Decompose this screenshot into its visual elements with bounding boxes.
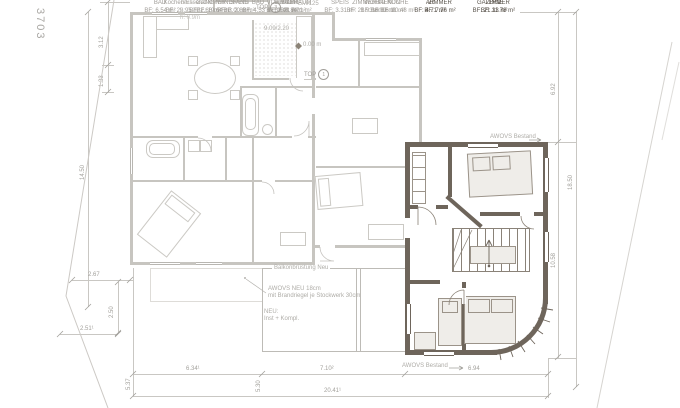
sink-icon: [262, 124, 273, 135]
dimension-line: [133, 374, 548, 375]
door-opening: [292, 136, 308, 138]
washer-icon: [200, 140, 212, 152]
room-name: ZIMMER: [197, 0, 232, 8]
wall-segment: [252, 180, 254, 264]
dim-5-30: 5.30: [256, 380, 262, 392]
wall-segment: [312, 12, 315, 265]
dimension-line: [576, 12, 577, 387]
dim-6-92: 6.92: [551, 83, 557, 95]
dimension-extension: [102, 92, 114, 93]
pillow-icon: [164, 194, 195, 222]
washer-icon: [188, 140, 200, 152]
wall-segment: [275, 86, 277, 138]
balcony-edge: [262, 351, 405, 352]
dim-6-34: 6.34¹: [186, 366, 200, 372]
dimension-extension: [102, 65, 114, 66]
wall-segment: [358, 38, 360, 88]
door-opening: [520, 212, 534, 216]
bed-icon: [137, 190, 201, 258]
stair-note: 9.09/2.20: [264, 26, 289, 33]
pillow-icon: [442, 301, 458, 313]
door-opening: [320, 245, 335, 248]
chair-icon: [230, 56, 240, 66]
dimension-line: [72, 280, 133, 281]
old-terrace-edge: [150, 301, 262, 302]
room-label-bad-eg: BAD BF: 6.54 m²: [144, 0, 175, 15]
floor-plan: 3703: [0, 0, 680, 408]
awovs-neu-line2: mit Brandriegel je Stockwerk 30cm: [268, 293, 360, 299]
awovs-bestand-note-bottom: AWOVS Bestand: [402, 363, 448, 370]
bathtub-icon: [149, 143, 175, 155]
room-label-zimmer-neu-sued: ZIMMER BF: 7.76 m²: [424, 0, 455, 15]
unit-badge-top3: TOP 3: [256, 2, 281, 13]
wall-segment: [252, 136, 254, 182]
room-label-zimmer-west: ZIMMER BF: 19.64 m²: [197, 0, 232, 15]
door-opening: [418, 205, 436, 209]
bed-icon: [464, 296, 516, 344]
room-name: ZIMMER: [424, 0, 455, 8]
dim-2-51: 2.51¹: [80, 326, 94, 332]
dimension-line: [88, 12, 89, 307]
wall-segment: [316, 86, 419, 88]
window-icon: [406, 304, 411, 334]
badge-number: 1: [318, 69, 329, 80]
room-name: Balkon: [180, 0, 201, 8]
wall-segment: [240, 86, 314, 88]
wardrobe-icon: [414, 332, 436, 350]
room-note: B: 0.2m: [180, 8, 201, 16]
pillow-icon: [468, 299, 490, 313]
chair-icon: [188, 56, 198, 66]
awovs-neu-note: AWOVS NEU 18cm mit Brandriegel je Stockw…: [268, 286, 360, 300]
dim-3-12: 3.12: [99, 36, 105, 48]
dimension-extension: [133, 268, 134, 396]
bruestung-note: Balkonbrüstung Neu: [272, 265, 330, 272]
room-area: BF: 6.54 m²: [144, 8, 175, 14]
bed-icon: [467, 150, 533, 197]
room-area: BF: 7.76 m²: [424, 8, 455, 14]
new-wall-segment: [448, 147, 452, 197]
balcony-edge: [262, 268, 263, 352]
room-label-balkon-alt: Balkon B: 0.2m h: 0.9m: [180, 0, 201, 23]
neu-line1: NEU:: [264, 309, 299, 316]
room-name: BALKON: [371, 0, 405, 8]
window-type-note: EM/125: [298, 1, 319, 8]
dim-18-50: 18.50: [568, 175, 574, 190]
old-terrace-edge: [150, 268, 262, 269]
bathtub-icon: [245, 98, 256, 130]
room-name: GALERIE: [473, 0, 508, 8]
neu-note: NEU: Inst + Kompl.: [264, 309, 299, 323]
dimension-line: [108, 2, 109, 92]
dim-2-50: 2.50: [109, 306, 115, 318]
dim-6-94: 6.94: [468, 366, 480, 372]
dim-5-37: 5.37: [126, 378, 132, 390]
dim-14-50: 14.50: [80, 165, 86, 180]
table-icon: [352, 118, 378, 134]
wall-segment: [130, 180, 316, 182]
chair-icon: [188, 90, 198, 100]
room-label-balkon: BALKON BF: 16.11 m²: [371, 0, 405, 15]
dimension-extension: [548, 358, 576, 359]
door-opening: [312, 98, 315, 114]
room-name: BAD: [144, 0, 175, 8]
badge-label: TOP: [256, 5, 268, 11]
room-area: BF: 21.33 m²: [473, 8, 508, 14]
dimension-line: [133, 396, 548, 397]
dim-20-41: 20.41¹: [324, 388, 341, 394]
room-area: BF: 19.64 m²: [197, 8, 232, 14]
badge-number: 3: [270, 2, 281, 13]
dimension-extension: [100, 2, 130, 3]
dimension-extension: [548, 142, 576, 143]
pillow-icon: [318, 178, 331, 207]
level-marker: 0.00 m: [303, 42, 321, 49]
old-terrace-edge: [150, 268, 151, 302]
door-opening: [462, 288, 466, 304]
bed-icon: [438, 298, 462, 346]
dimension-line: [118, 282, 119, 333]
dim-1-33: 1.33: [99, 75, 105, 87]
balcony-divider: [360, 268, 361, 352]
property-boundary-right2: [662, 62, 679, 140]
window-icon: [366, 38, 396, 41]
unit-badge-top1: TOP 1: [304, 69, 329, 80]
dimension-extension: [548, 358, 549, 398]
wall-segment: [332, 12, 335, 41]
leader-line-awovs-neu: [246, 279, 266, 293]
chair-icon: [230, 90, 240, 100]
leader-dot: [244, 277, 246, 279]
property-boundary-right: [597, 42, 672, 408]
wall-segment: [130, 136, 316, 138]
wall-segment: [183, 136, 185, 182]
dim-10-58: 10.58: [551, 253, 557, 268]
sofa-icon: [470, 246, 516, 264]
dimension-extension: [520, 12, 576, 13]
kitchen-counter-icon: [364, 42, 420, 56]
dim-7-10: 7.10²: [320, 366, 334, 372]
awovs-bestand-note-top: AWOVS Bestand: [490, 134, 536, 141]
new-wall-segment: [410, 280, 440, 284]
room-area: BF: 16.11 m²: [371, 8, 405, 14]
balcony-divider: [356, 268, 357, 352]
dimension-line: [60, 334, 118, 335]
new-wall-segment: [445, 195, 482, 228]
dim-2-67: 2.67: [88, 272, 100, 278]
window-icon: [424, 351, 454, 356]
window-icon: [130, 148, 133, 174]
desk-icon: [280, 232, 306, 246]
window-icon: [150, 262, 180, 265]
property-boundary-left: [66, 0, 114, 408]
wall-segment: [225, 136, 227, 182]
badge-label: TOP: [304, 72, 316, 78]
parcel-number: 3703: [34, 8, 46, 40]
door-opening: [289, 78, 304, 80]
sofa-icon: [143, 16, 157, 58]
wall-segment: [130, 12, 133, 265]
arrow-awovs-bottom: [449, 366, 463, 370]
door-opening: [198, 136, 212, 138]
sofa-icon: [368, 224, 404, 240]
door-opening: [405, 218, 410, 238]
window-icon: [544, 232, 549, 262]
dimension-line: [558, 12, 559, 358]
pillow-icon: [492, 155, 511, 170]
pillow-icon: [472, 156, 491, 171]
window-icon: [468, 143, 498, 148]
neu-line2: Inst + Kompl.: [264, 316, 299, 322]
bed-icon: [315, 172, 364, 210]
pillow-icon: [491, 299, 513, 313]
door-opening: [262, 180, 275, 182]
awovs-neu-line1: AWOVS NEU 18cm: [268, 286, 360, 293]
room-label-galerie: GALERIE BF: 21.33 m²: [473, 0, 508, 15]
window-icon: [544, 158, 549, 192]
wall-segment: [316, 166, 405, 168]
window-icon: [196, 262, 222, 265]
room-note: h: 0.9m: [180, 15, 200, 21]
shelf-icon: [412, 152, 426, 204]
